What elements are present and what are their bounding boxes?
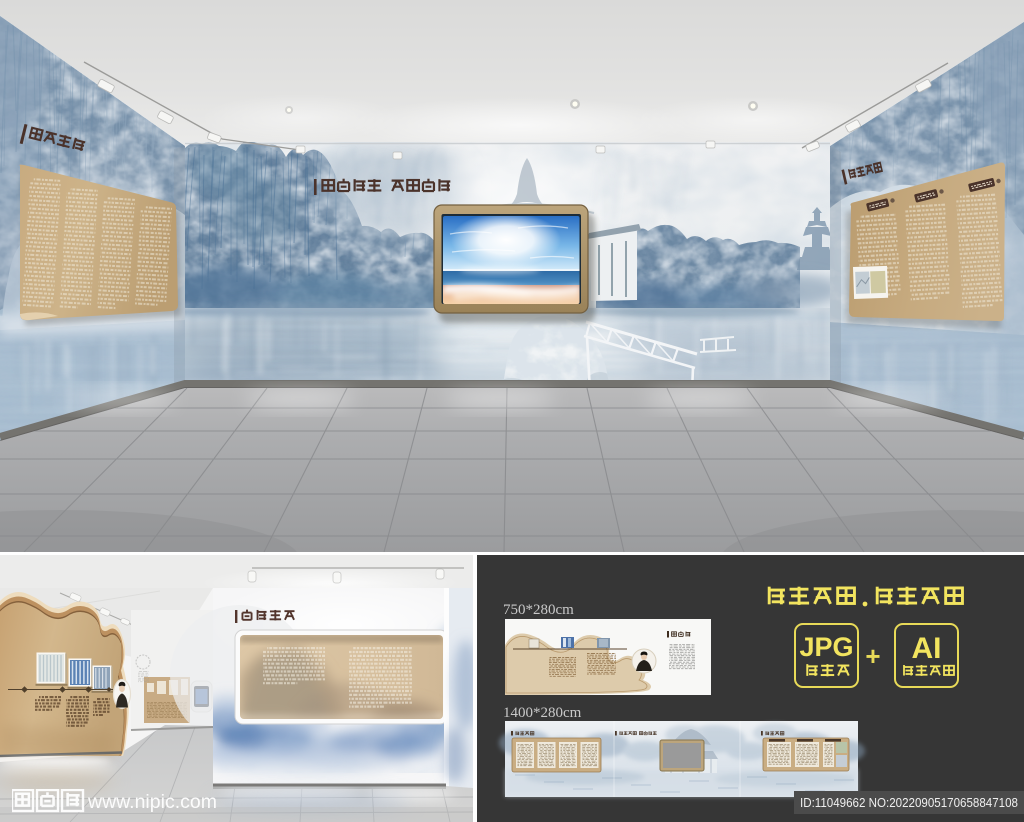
svg-text:JPG: JPG	[799, 632, 853, 662]
svg-text:AI: AI	[912, 632, 942, 665]
svg-text:+: +	[865, 641, 880, 671]
svg-text:1400*280cm: 1400*280cm	[503, 705, 582, 721]
svg-text:750*280cm: 750*280cm	[503, 602, 574, 618]
svg-text:www.nipic.com: www.nipic.com	[87, 791, 217, 813]
svg-text:ID:11049662 NO:202209051706588: ID:11049662 NO:20220905170658847108	[800, 796, 1018, 810]
